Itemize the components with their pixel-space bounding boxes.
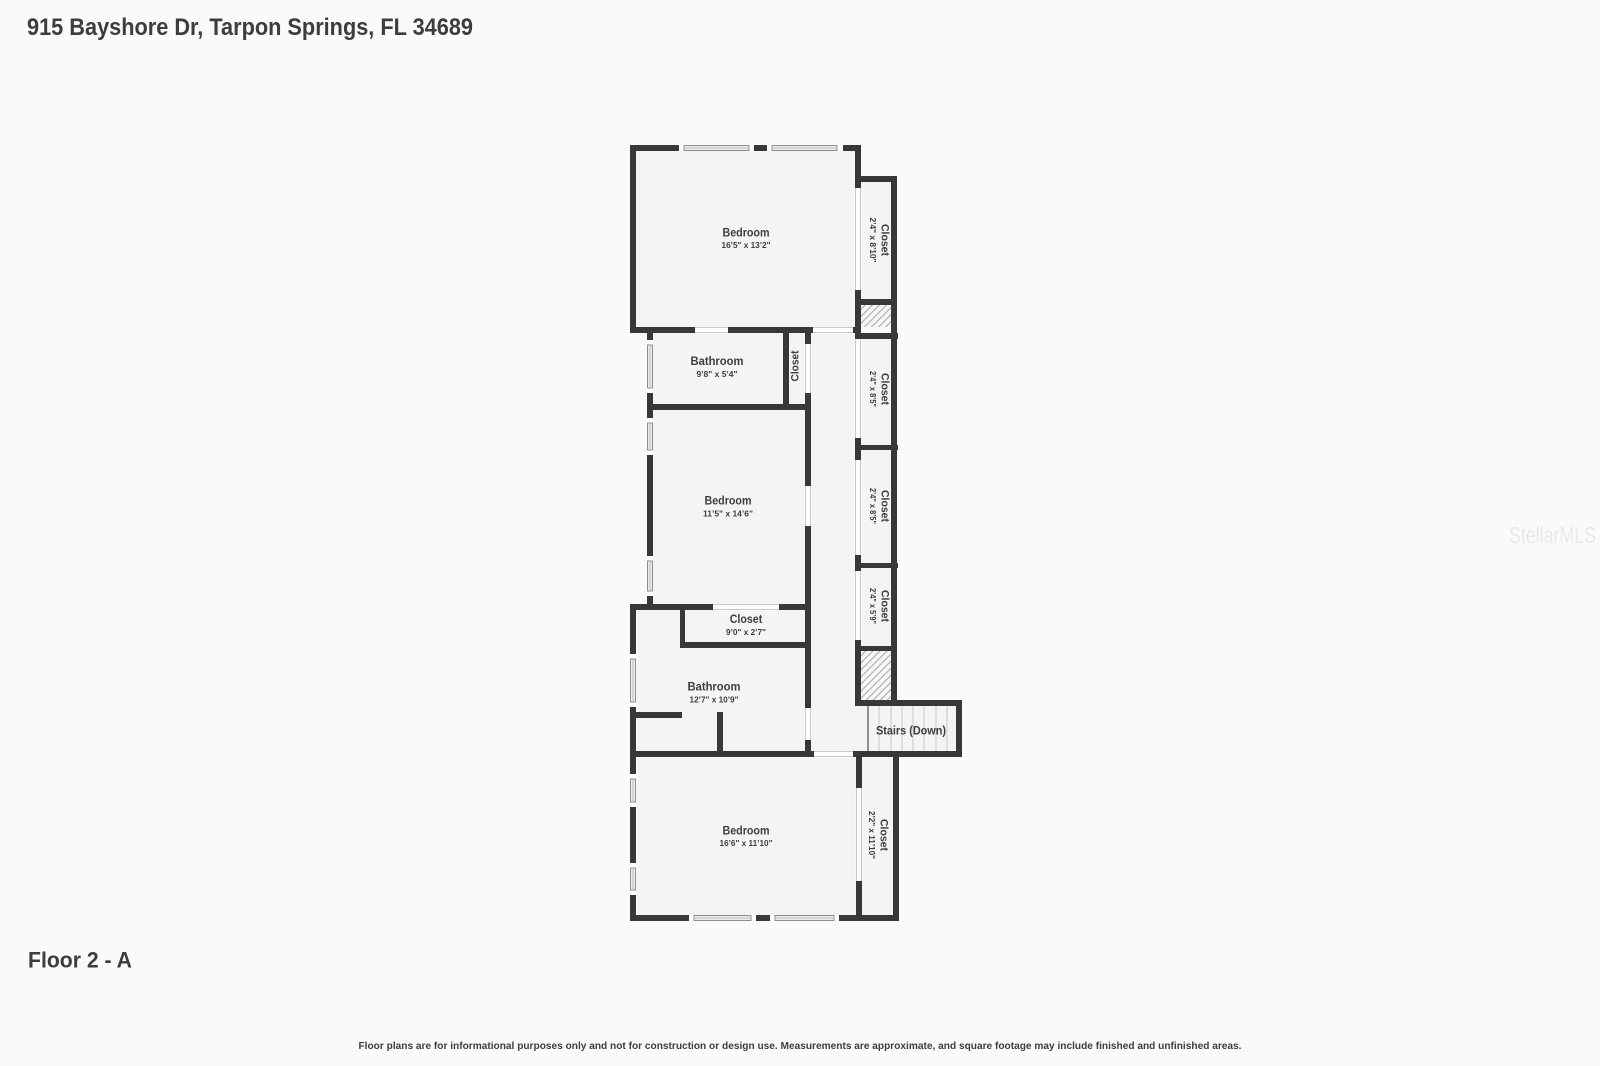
svg-text:Floor plans are for informatio: Floor plans are for informational purpos… bbox=[359, 1040, 1242, 1052]
svg-text:Closet: Closet bbox=[879, 373, 891, 405]
svg-text:Closet: Closet bbox=[790, 350, 802, 381]
svg-text:2’4" x 5’9": 2’4" x 5’9" bbox=[868, 588, 878, 624]
svg-text:2’4" x 8’10": 2’4" x 8’10" bbox=[868, 218, 878, 263]
svg-text:915 Bayshore Dr, Tarpon Spring: 915 Bayshore Dr, Tarpon Springs, FL 3468… bbox=[27, 14, 473, 41]
svg-text:9’0" x 2’7": 9’0" x 2’7" bbox=[726, 627, 766, 637]
svg-text:16’6" x 11’10": 16’6" x 11’10" bbox=[720, 838, 773, 848]
svg-text:Floor 2 - A: Floor 2 - A bbox=[28, 948, 132, 973]
svg-text:Bedroom: Bedroom bbox=[723, 826, 770, 838]
svg-text:Bathroom: Bathroom bbox=[691, 356, 744, 368]
svg-text:2’4" x 8’5": 2’4" x 8’5" bbox=[868, 488, 878, 524]
svg-text:Stairs (Down): Stairs (Down) bbox=[876, 724, 946, 738]
svg-text:16’5" x 13’2": 16’5" x 13’2" bbox=[722, 240, 771, 250]
svg-text:9’8" x 5’4": 9’8" x 5’4" bbox=[697, 369, 738, 379]
svg-text:StellarMLS: StellarMLS bbox=[1509, 522, 1596, 548]
svg-text:Closet: Closet bbox=[730, 614, 763, 626]
svg-text:Closet: Closet bbox=[879, 590, 891, 622]
svg-text:Bedroom: Bedroom bbox=[705, 496, 752, 508]
svg-text:Bathroom: Bathroom bbox=[688, 682, 741, 694]
svg-text:Closet: Closet bbox=[878, 819, 890, 851]
svg-text:12’7" x 10’9": 12’7" x 10’9" bbox=[690, 695, 739, 705]
svg-text:Bedroom: Bedroom bbox=[723, 228, 770, 240]
svg-text:Closet: Closet bbox=[879, 224, 891, 256]
svg-text:2’4" x 8’5": 2’4" x 8’5" bbox=[868, 371, 878, 407]
svg-text:2’2" x 11’10": 2’2" x 11’10" bbox=[867, 811, 877, 859]
svg-text:11’5" x 14’6": 11’5" x 14’6" bbox=[703, 509, 753, 519]
svg-text:Closet: Closet bbox=[879, 490, 891, 522]
